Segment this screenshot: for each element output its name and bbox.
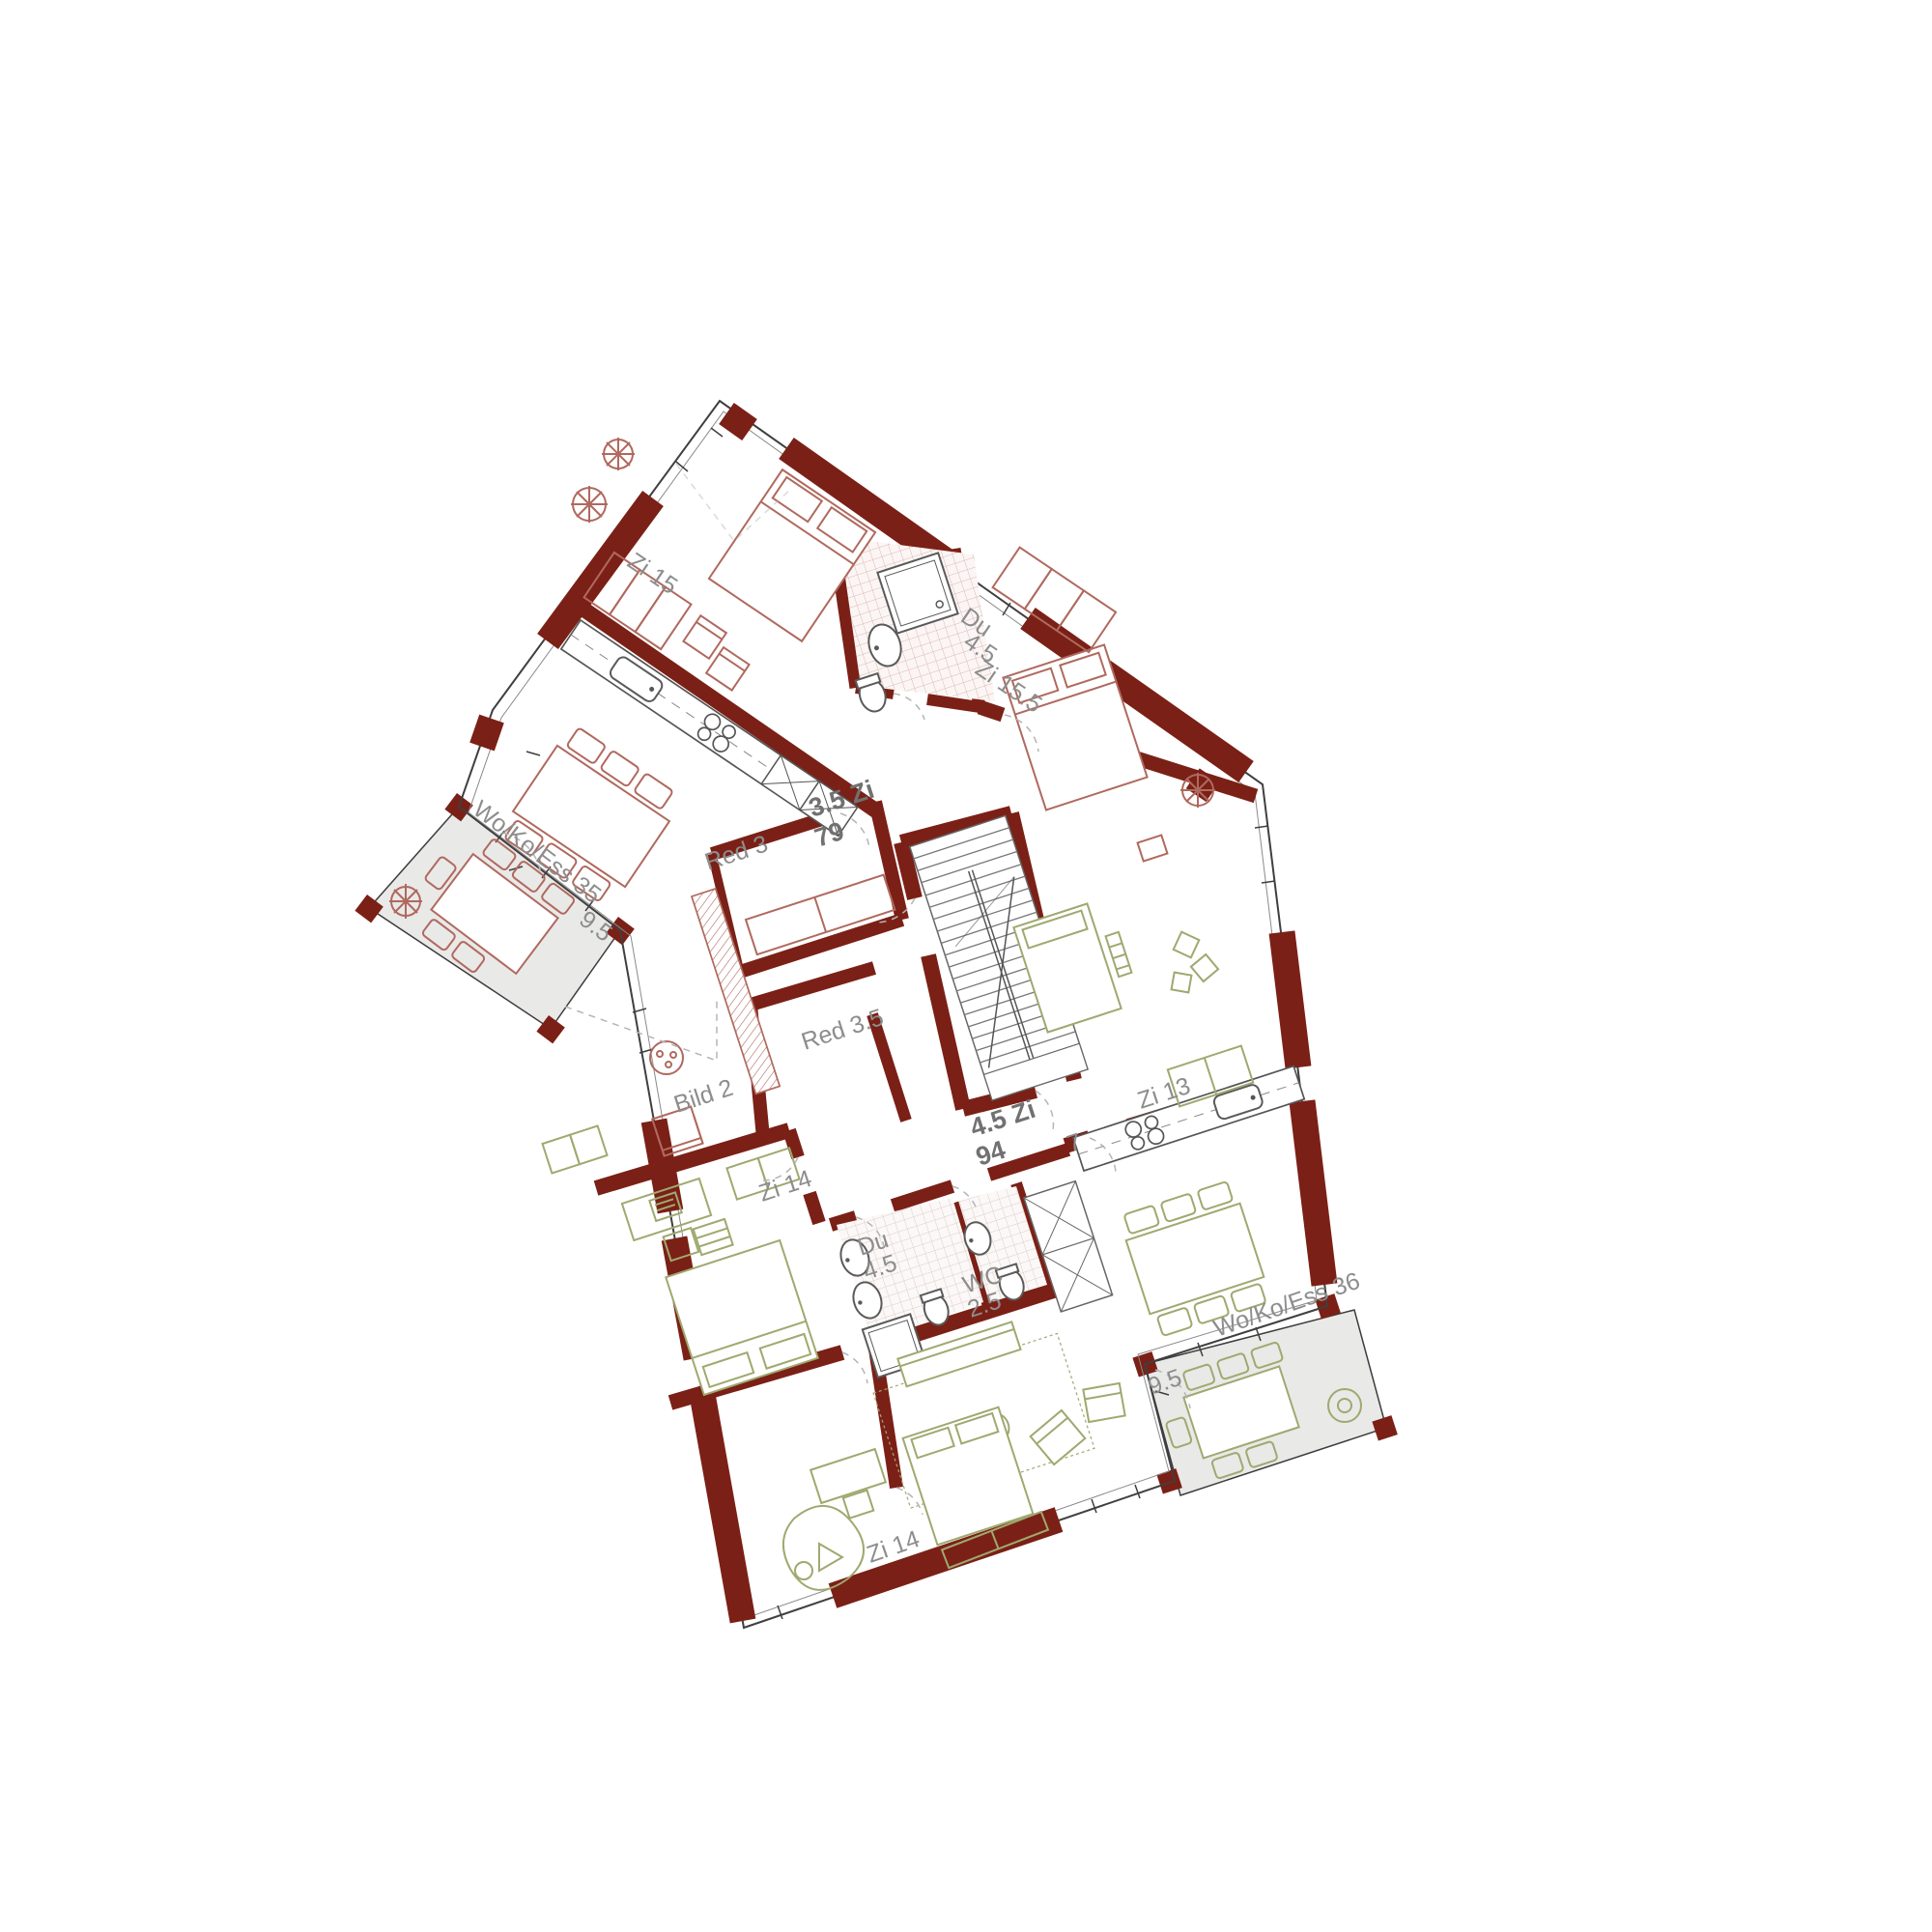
- armchair: [1031, 1410, 1086, 1464]
- wardrobe: [543, 1126, 608, 1174]
- armchair: [1083, 1383, 1124, 1422]
- annotation-bild2: Bild 2: [670, 1074, 736, 1119]
- plant: [571, 486, 608, 523]
- cushions: [1172, 932, 1219, 993]
- room-label-red3: Red 3: [701, 830, 771, 875]
- desk: [810, 1449, 893, 1525]
- kitchen-lower: [1073, 1066, 1304, 1171]
- plant: [602, 438, 635, 470]
- sideboard: [692, 889, 780, 1094]
- nightstand: [1138, 835, 1168, 861]
- floor-plan-page: Zi 15 Du 4.5 Zi 15.5 Wo/Ko/Ess 35 9.5 3.…: [0, 0, 1932, 1932]
- bed: [1003, 645, 1147, 810]
- room-label-red35: Red 3.5: [798, 1004, 887, 1056]
- floor-plan: Zi 15 Du 4.5 Zi 15.5 Wo/Ko/Ess 35 9.5 3.…: [0, 0, 1932, 1932]
